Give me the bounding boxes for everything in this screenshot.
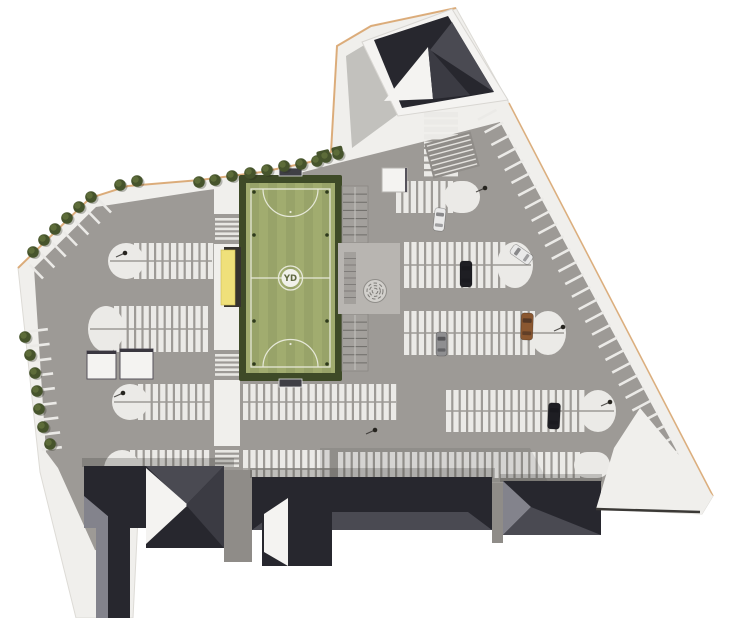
car-windshield — [550, 408, 559, 413]
tree-highlight — [39, 235, 45, 241]
crosswalk-stripe — [215, 373, 239, 376]
crosswalk-stripe — [215, 223, 239, 226]
tree-highlight — [296, 159, 302, 165]
spiral-stair — [364, 280, 387, 303]
pole-head — [121, 391, 126, 396]
car — [521, 313, 534, 340]
kiosk-edge — [87, 351, 116, 354]
kiosk — [120, 349, 153, 379]
floodlight-dot — [252, 319, 256, 323]
floodlight-dot — [252, 190, 256, 194]
parking-band — [108, 243, 213, 279]
site-plan: YD — [0, 0, 730, 618]
tree-highlight — [333, 149, 339, 155]
tree-highlight — [32, 386, 38, 392]
parking-stall — [411, 181, 416, 213]
tree-highlight — [321, 152, 327, 158]
field-logo-text: YD — [283, 274, 297, 284]
cast-shadow — [320, 448, 548, 482]
tree-highlight — [62, 213, 68, 219]
floodlight-dot — [325, 362, 329, 366]
crosswalk-stripe — [215, 218, 239, 221]
car-windshield — [438, 337, 446, 341]
tree-highlight — [34, 404, 40, 410]
car — [433, 207, 446, 231]
car — [436, 332, 447, 356]
car — [547, 403, 560, 430]
building-row-south — [82, 448, 602, 618]
parking-stall — [426, 181, 431, 213]
tree-highlight — [30, 368, 36, 374]
crosswalk-stripe — [215, 450, 239, 453]
crosswalk-stripe — [215, 455, 239, 458]
kiosk-roof — [120, 349, 153, 379]
kiosk-roof — [87, 351, 116, 379]
floodlight-dot — [325, 190, 329, 194]
crosswalk-stripe — [215, 359, 239, 362]
tree — [49, 223, 62, 236]
car-body — [433, 207, 446, 231]
car-body — [547, 403, 560, 430]
crosswalk-stripe — [215, 364, 239, 367]
plaza-stairs — [344, 252, 356, 304]
soccer-field: YD — [239, 168, 342, 387]
car-rear-window — [462, 279, 471, 283]
tree-highlight — [245, 168, 251, 174]
parking-stall — [424, 112, 458, 117]
grandstand-south — [342, 314, 368, 371]
crosswalk-stripe — [215, 237, 239, 240]
car — [460, 261, 472, 287]
floodlight-dot — [325, 233, 329, 237]
parking-stall — [424, 127, 458, 132]
grandstand-north — [342, 186, 368, 243]
car-body — [521, 313, 534, 340]
pole-head — [561, 325, 566, 330]
floodlight-dot — [325, 319, 329, 323]
tree-highlight — [262, 165, 268, 171]
tree-highlight — [20, 332, 26, 338]
tree-highlight — [115, 180, 121, 186]
car-body — [436, 332, 447, 356]
pole-head — [608, 400, 613, 405]
tree-highlight — [194, 177, 200, 183]
parking-band — [446, 390, 616, 432]
crosswalk-stripe — [215, 368, 239, 371]
tree-highlight — [50, 224, 56, 230]
yellow-canopy — [221, 250, 235, 305]
penalty-spot — [289, 211, 291, 213]
pole-head — [373, 428, 378, 433]
goal-south — [279, 379, 302, 387]
building-shadow — [82, 458, 234, 467]
kiosk-edge — [120, 349, 153, 352]
building-gap-paving — [224, 470, 252, 562]
tree-highlight — [279, 161, 285, 167]
car-rear-window — [522, 331, 531, 335]
car-body — [460, 261, 472, 287]
floodlight-dot — [252, 362, 256, 366]
tree-highlight — [227, 171, 233, 177]
field-kiosk-shadow — [405, 168, 407, 192]
parking-stall — [424, 119, 458, 124]
tree-highlight — [74, 202, 80, 208]
tree-highlight — [28, 247, 34, 253]
site-plan-image: YD — [0, 0, 730, 618]
tree-highlight — [45, 439, 51, 445]
parking-stall — [448, 181, 453, 213]
crosswalk-stripe — [215, 228, 239, 231]
building-gap-paving — [492, 483, 503, 543]
tree-highlight — [210, 175, 216, 181]
crosswalk-stripe — [215, 354, 239, 357]
field-kiosk — [382, 168, 407, 192]
tree-highlight — [312, 156, 318, 162]
car-rear-window — [438, 348, 446, 351]
pole-head — [123, 251, 128, 256]
car-rear-window — [549, 420, 558, 424]
pedestrian-walkway — [214, 184, 240, 474]
car-windshield — [462, 266, 471, 270]
tree-highlight — [38, 422, 44, 428]
building-roof — [96, 516, 108, 618]
parking-stall — [418, 181, 423, 213]
parking-band — [243, 384, 396, 420]
car-windshield — [523, 318, 532, 323]
tree-highlight — [132, 176, 138, 182]
crosswalk-stripe — [215, 232, 239, 235]
penalty-spot — [289, 343, 291, 345]
kiosk — [87, 351, 116, 379]
tree-highlight — [86, 192, 92, 198]
pole-head — [483, 186, 488, 191]
tree-highlight — [25, 350, 31, 356]
floodlight-dot — [252, 233, 256, 237]
